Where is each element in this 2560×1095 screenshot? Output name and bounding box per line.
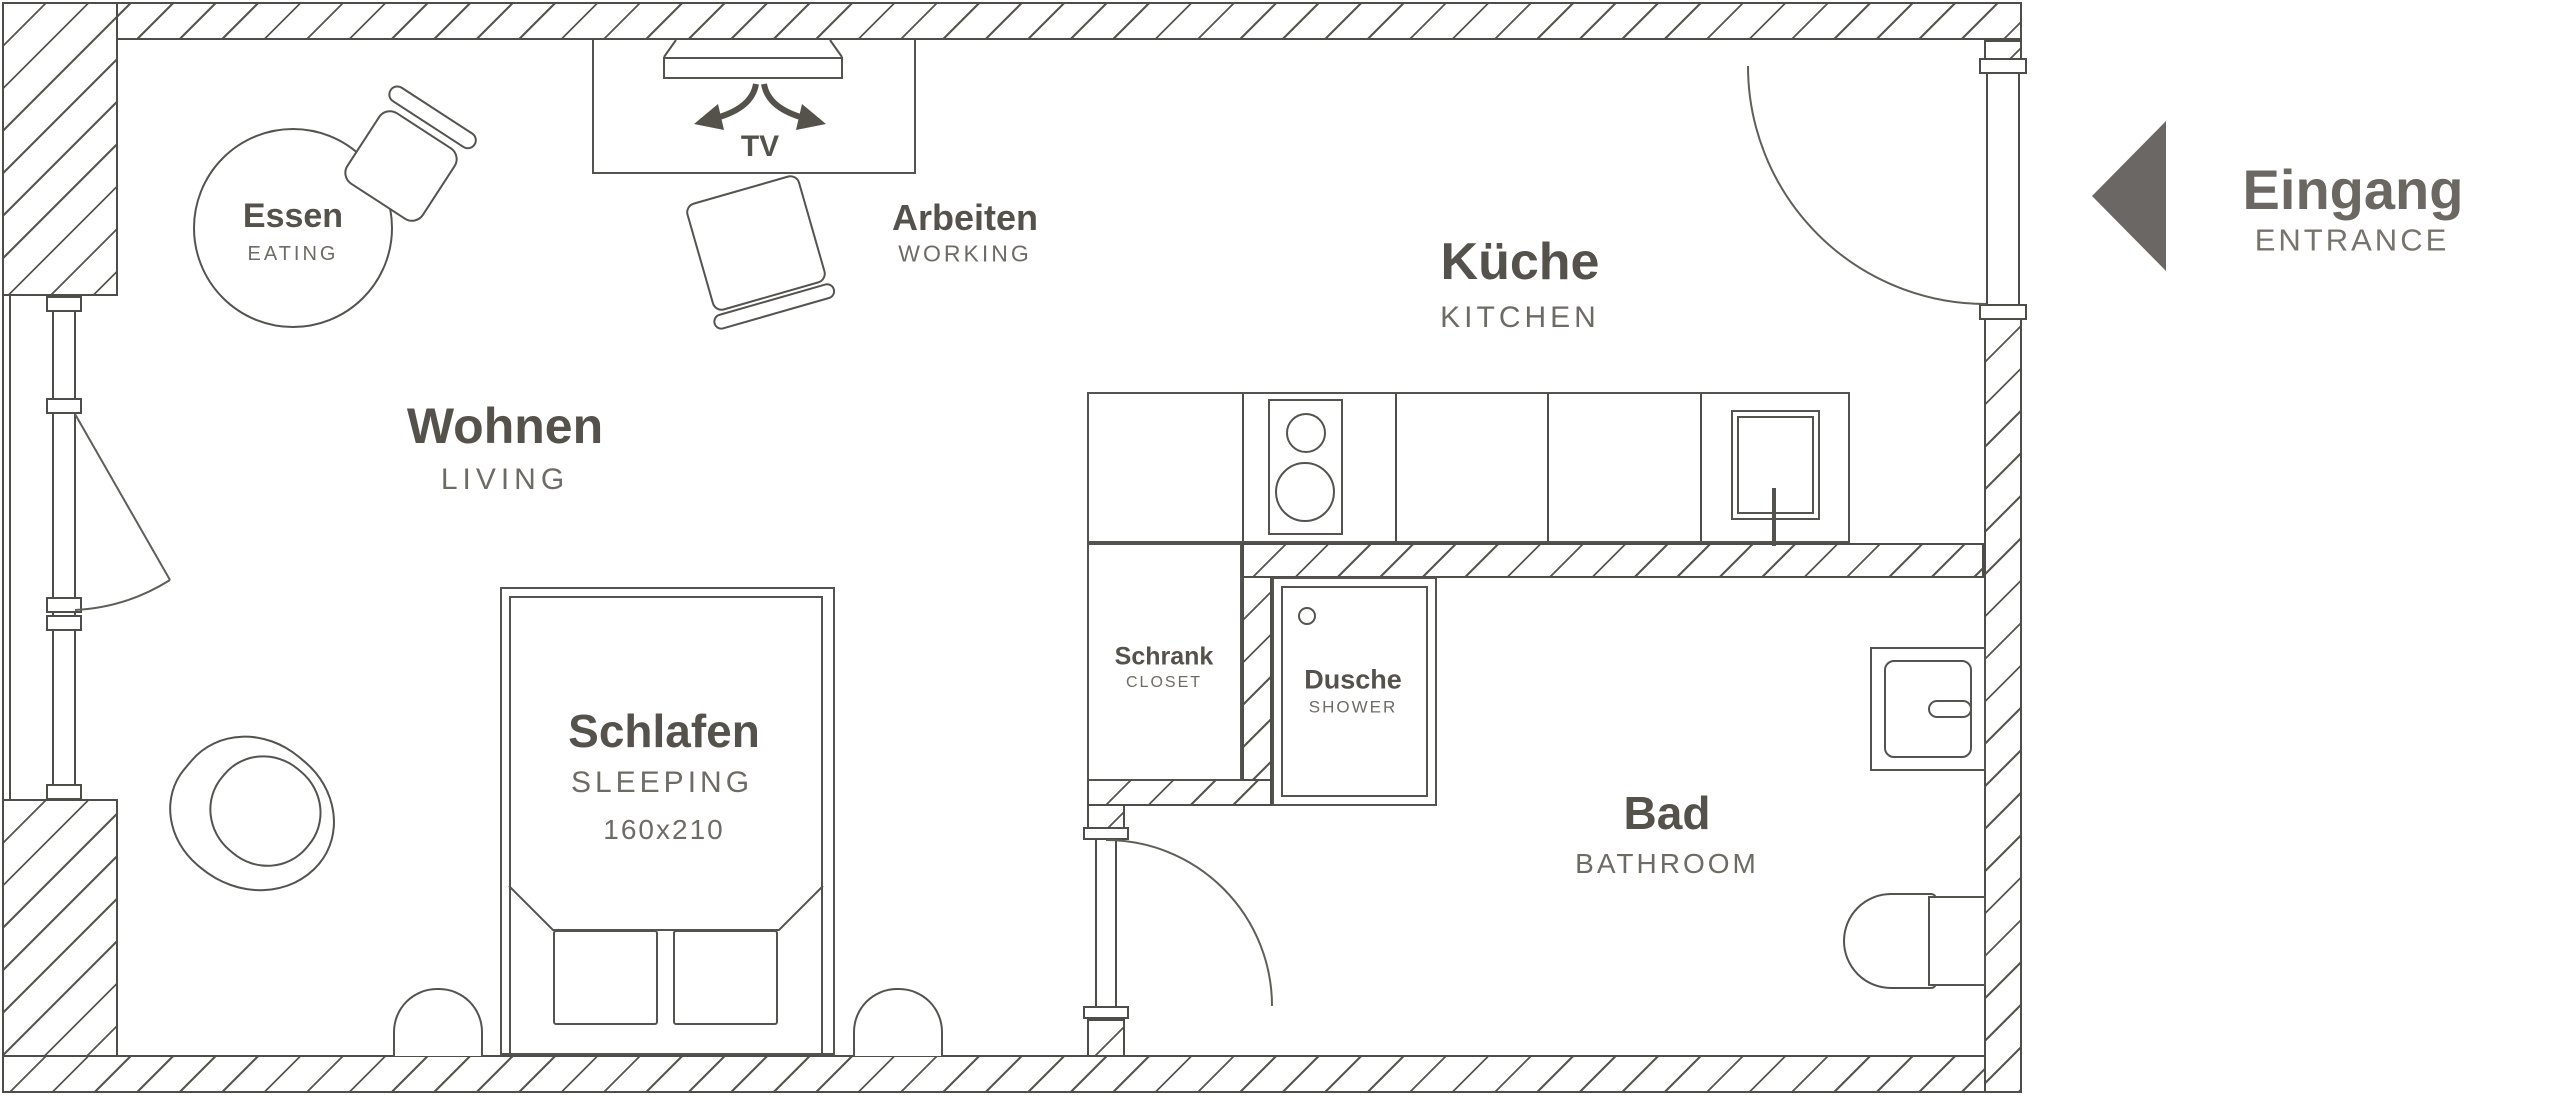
wall-top <box>2 2 2022 40</box>
window-frame-line-inner <box>74 296 76 799</box>
bathroom-door-post-top <box>1083 827 1129 840</box>
label-kitchen-de: Küche <box>1441 236 1600 288</box>
entrance-arrow-icon <box>2092 121 2166 271</box>
window-mullion <box>46 784 82 800</box>
entrance-door-post-top <box>1979 58 2027 74</box>
label-bed-size: 160x210 <box>603 816 724 844</box>
toilet-bowl <box>1843 893 1937 989</box>
kitchen-sink-basin <box>1737 416 1814 514</box>
wall-right <box>1984 318 2022 1093</box>
counter-divider <box>1700 394 1702 541</box>
label-sleeping-en: SLEEPING <box>571 768 753 798</box>
cooktop-burner-small <box>1286 413 1326 453</box>
wall-bathdoor-bottom-stub <box>1087 1019 1125 1057</box>
stool-left <box>393 988 483 1056</box>
bed-pillow-left <box>553 930 658 1025</box>
label-kitchen-en: KITCHEN <box>1440 303 1600 333</box>
bathroom-door-post-bottom <box>1083 1006 1129 1019</box>
entrance-door-swing-arc <box>1748 66 1986 304</box>
window-frame-line-outer <box>52 296 54 799</box>
wall-bathdoor-top-stub <box>1087 804 1125 829</box>
window-mullion <box>46 615 82 631</box>
label-entrance-de: Eingang <box>2243 162 2464 218</box>
label-eating-en: EATING <box>248 244 339 264</box>
label-entrance-en: ENTRANCE <box>2255 225 2450 256</box>
bathroom-door-leaf <box>1095 840 1117 1006</box>
label-sleeping-de: Schlafen <box>568 708 760 754</box>
floor-plan: Essen EATING Wohnen LIVING Arbeiten WORK… <box>0 0 2560 1095</box>
label-closet-de: Schrank <box>1115 645 1214 670</box>
window-sash-arc <box>75 580 170 610</box>
balcony-edge-line-outer <box>2 296 4 799</box>
entrance-door-leaf <box>1986 74 2020 304</box>
counter-divider <box>1395 394 1397 541</box>
bathroom-faucet <box>1928 700 1972 718</box>
label-closet-en: CLOSET <box>1126 675 1202 691</box>
bathroom-door-swing-arc <box>1106 840 1272 1006</box>
label-working-de: Arbeiten <box>892 200 1038 236</box>
wall-right-above-door <box>1984 40 2022 60</box>
label-working-en: WORKING <box>898 243 1031 266</box>
cooktop-burner-large <box>1275 462 1335 522</box>
entrance-door-post-bottom <box>1979 304 2027 320</box>
wall-left-lower <box>2 799 118 1093</box>
window-mullion <box>46 597 82 613</box>
counter-divider <box>1547 394 1549 541</box>
window-sash-line <box>75 414 170 580</box>
window-mullion <box>46 296 82 312</box>
wall-kitchen-bath-divider <box>1242 543 1984 578</box>
window-mullion <box>46 398 82 414</box>
wall-bottom <box>2 1055 2022 1093</box>
balcony-edge-line-inner <box>9 296 11 799</box>
label-shower-en: SHOWER <box>1309 699 1398 716</box>
label-shower-de: Dusche <box>1304 667 1402 694</box>
armchair <box>141 704 365 926</box>
label-tv: TV <box>741 132 779 162</box>
wall-closet-shower <box>1242 576 1272 806</box>
shower-drain <box>1298 607 1316 625</box>
label-living-de: Wohnen <box>407 401 603 451</box>
toilet-tank <box>1928 896 1986 986</box>
counter-divider <box>1242 394 1244 541</box>
label-bathroom-de: Bad <box>1624 790 1711 836</box>
bed-pillow-right <box>673 930 778 1025</box>
tv-board <box>663 57 843 79</box>
label-bathroom-en: BATHROOM <box>1575 850 1759 878</box>
label-living-en: LIVING <box>441 465 569 495</box>
stool-right <box>853 988 943 1056</box>
label-eating-de: Essen <box>243 199 343 233</box>
desk-chair <box>684 173 828 313</box>
wall-under-closet <box>1087 779 1272 806</box>
wall-left-upper <box>2 2 118 296</box>
